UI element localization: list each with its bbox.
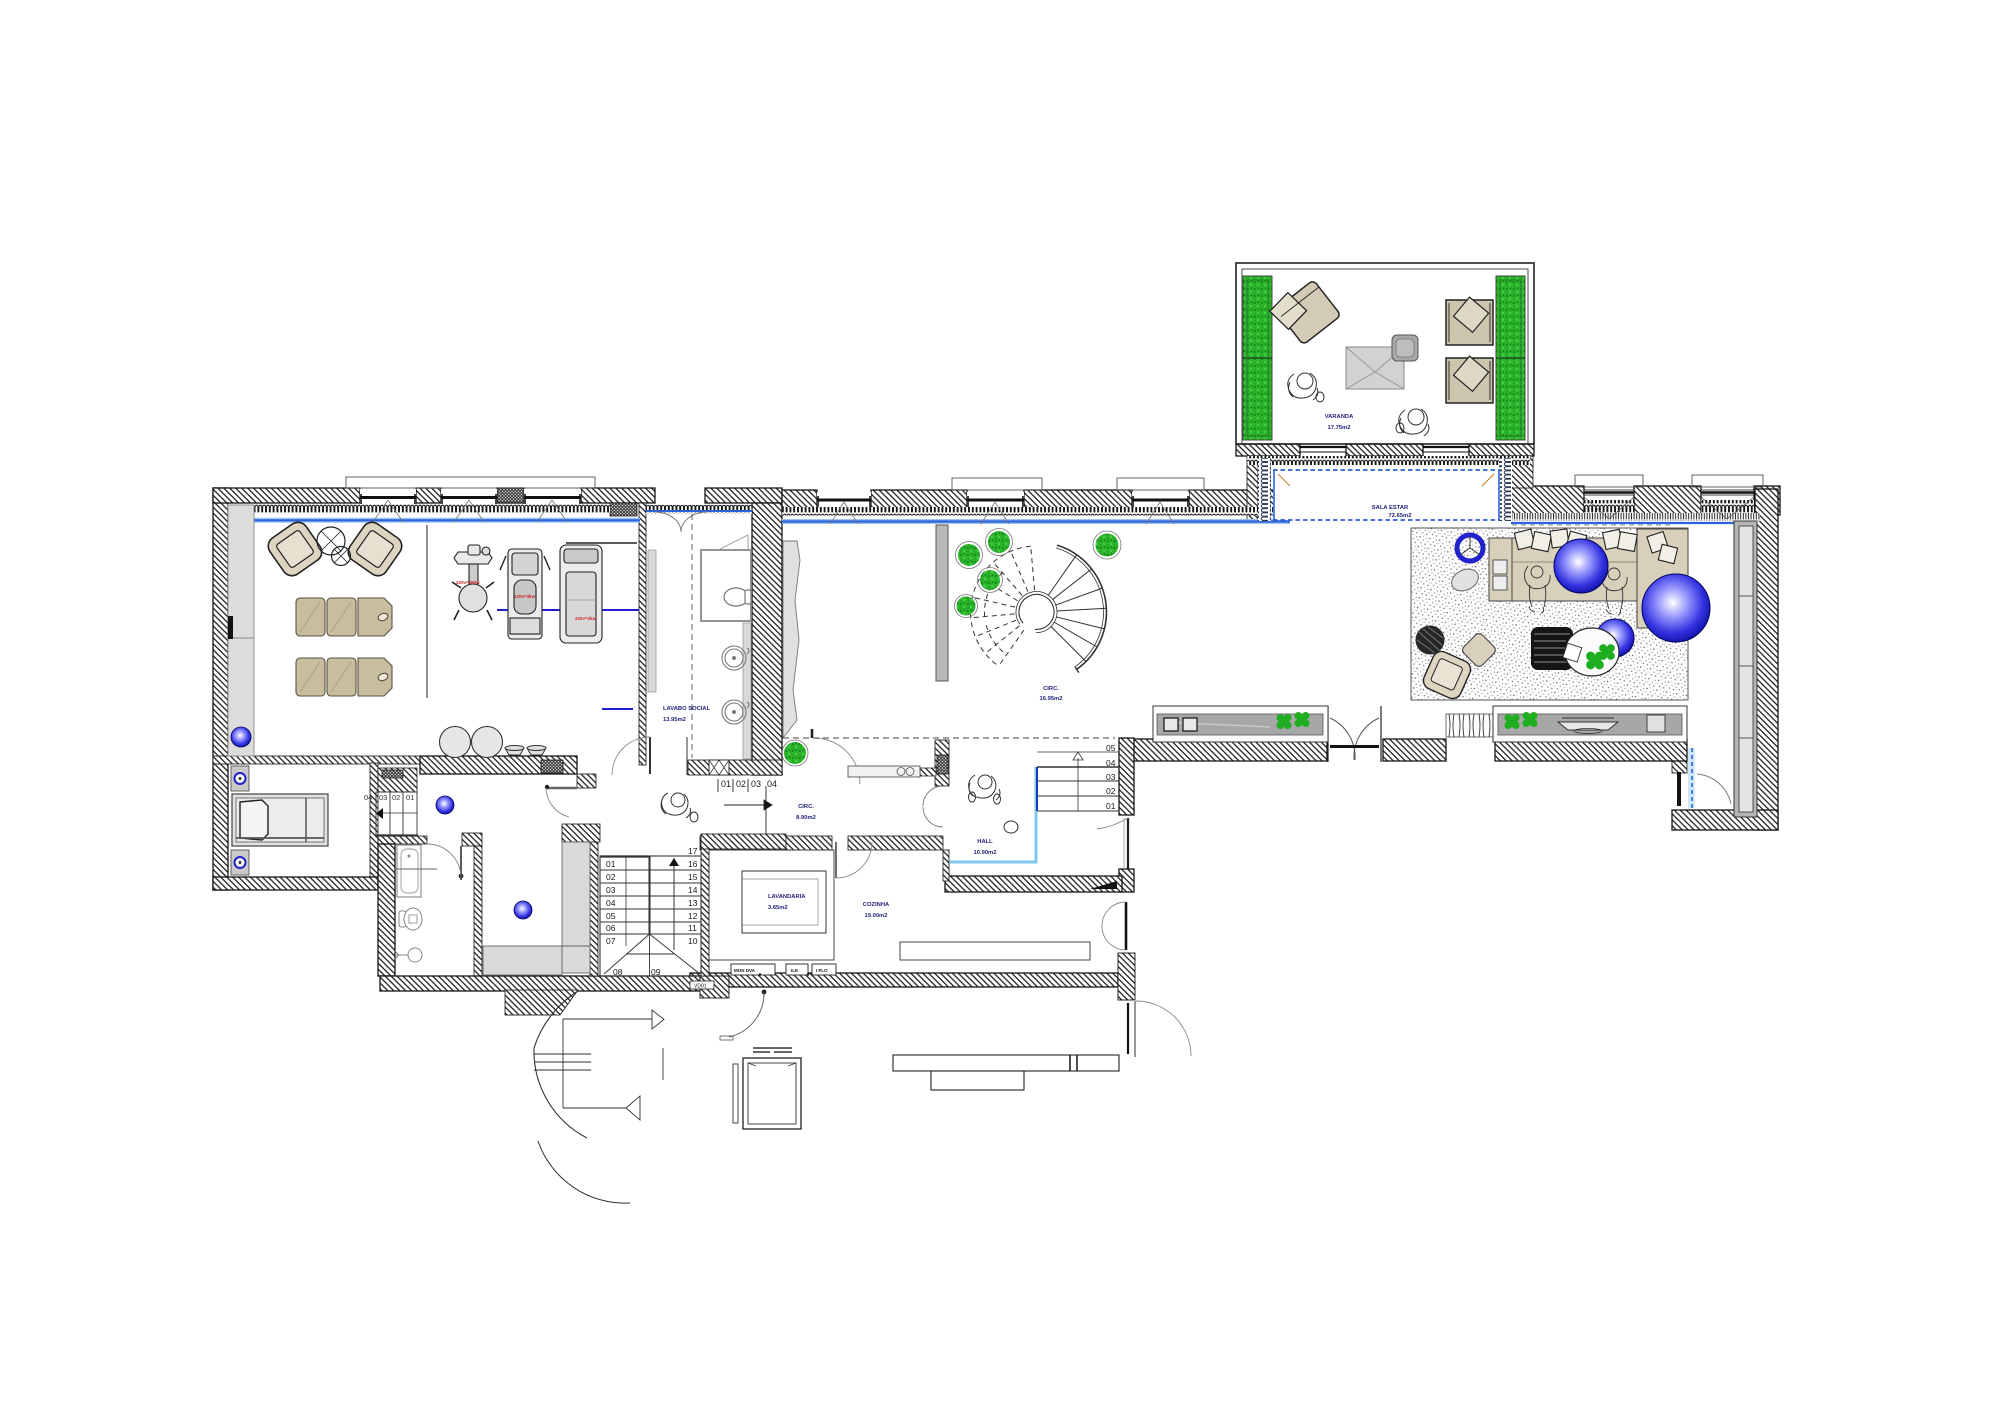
svg-text:3.65m2: 3.65m2 <box>768 905 788 911</box>
svg-text:08: 08 <box>613 967 623 977</box>
svg-text:ILE: ILE <box>791 968 798 973</box>
svg-text:I FLO: I FLO <box>816 968 828 973</box>
svg-text:04: 04 <box>364 793 372 802</box>
svg-text:03: 03 <box>751 779 761 789</box>
svg-text:02: 02 <box>606 872 616 882</box>
svg-text:LAVABO SOCIAL: LAVABO SOCIAL <box>663 706 711 712</box>
svg-text:04: 04 <box>1106 758 1116 768</box>
svg-text:05: 05 <box>606 911 616 921</box>
svg-text:72.65m2: 72.65m2 <box>1389 513 1412 519</box>
svg-text:13.95m2: 13.95m2 <box>663 717 686 723</box>
svg-text:17.75m2: 17.75m2 <box>1328 425 1351 431</box>
svg-text:17: 17 <box>688 846 698 856</box>
svg-text:16: 16 <box>688 859 698 869</box>
svg-text:04: 04 <box>606 898 616 908</box>
svg-text:09: 09 <box>651 967 661 977</box>
svg-text:SALA ESTAR: SALA ESTAR <box>1372 505 1409 511</box>
svg-text:03: 03 <box>1106 772 1116 782</box>
svg-text:220v=380w: 220v=380w <box>456 580 480 585</box>
svg-text:VARANDA: VARANDA <box>1325 414 1354 420</box>
svg-text:03: 03 <box>379 793 387 802</box>
svg-text:02: 02 <box>736 779 746 789</box>
svg-text:07: 07 <box>606 936 616 946</box>
svg-text:01: 01 <box>406 793 414 802</box>
svg-text:10: 10 <box>688 936 698 946</box>
svg-text:13: 13 <box>688 898 698 908</box>
svg-text:220v=2kw: 220v=2kw <box>575 616 597 621</box>
svg-text:02: 02 <box>392 793 400 802</box>
svg-text:COZINHA: COZINHA <box>863 902 890 908</box>
svg-text:8.90m2: 8.90m2 <box>796 815 816 821</box>
svg-text:02: 02 <box>1106 786 1116 796</box>
svg-text:LAVANDARIA: LAVANDARIA <box>768 894 806 900</box>
svg-text:01: 01 <box>606 859 616 869</box>
svg-text:04: 04 <box>767 779 777 789</box>
svg-text:MON DVA: MON DVA <box>734 968 756 973</box>
svg-text:14: 14 <box>688 885 698 895</box>
svg-text:01: 01 <box>721 779 731 789</box>
svg-text:19.00m2: 19.00m2 <box>865 913 888 919</box>
svg-text:CIRC.: CIRC. <box>798 804 814 810</box>
svg-text:12: 12 <box>688 911 698 921</box>
svg-text:05: 05 <box>1106 743 1116 753</box>
svg-text:16.95m2: 16.95m2 <box>1040 696 1063 702</box>
svg-text:220v=3kw: 220v=3kw <box>514 594 536 599</box>
svg-text:VD01: VD01 <box>694 984 707 990</box>
svg-text:15: 15 <box>688 872 698 882</box>
svg-text:10.90m2: 10.90m2 <box>974 850 997 856</box>
svg-text:11: 11 <box>688 923 697 933</box>
svg-text:CIRC.: CIRC. <box>1043 686 1059 692</box>
svg-text:HALL: HALL <box>977 839 993 845</box>
svg-text:06: 06 <box>606 923 616 933</box>
svg-text:01: 01 <box>1106 801 1116 811</box>
svg-text:03: 03 <box>606 885 616 895</box>
